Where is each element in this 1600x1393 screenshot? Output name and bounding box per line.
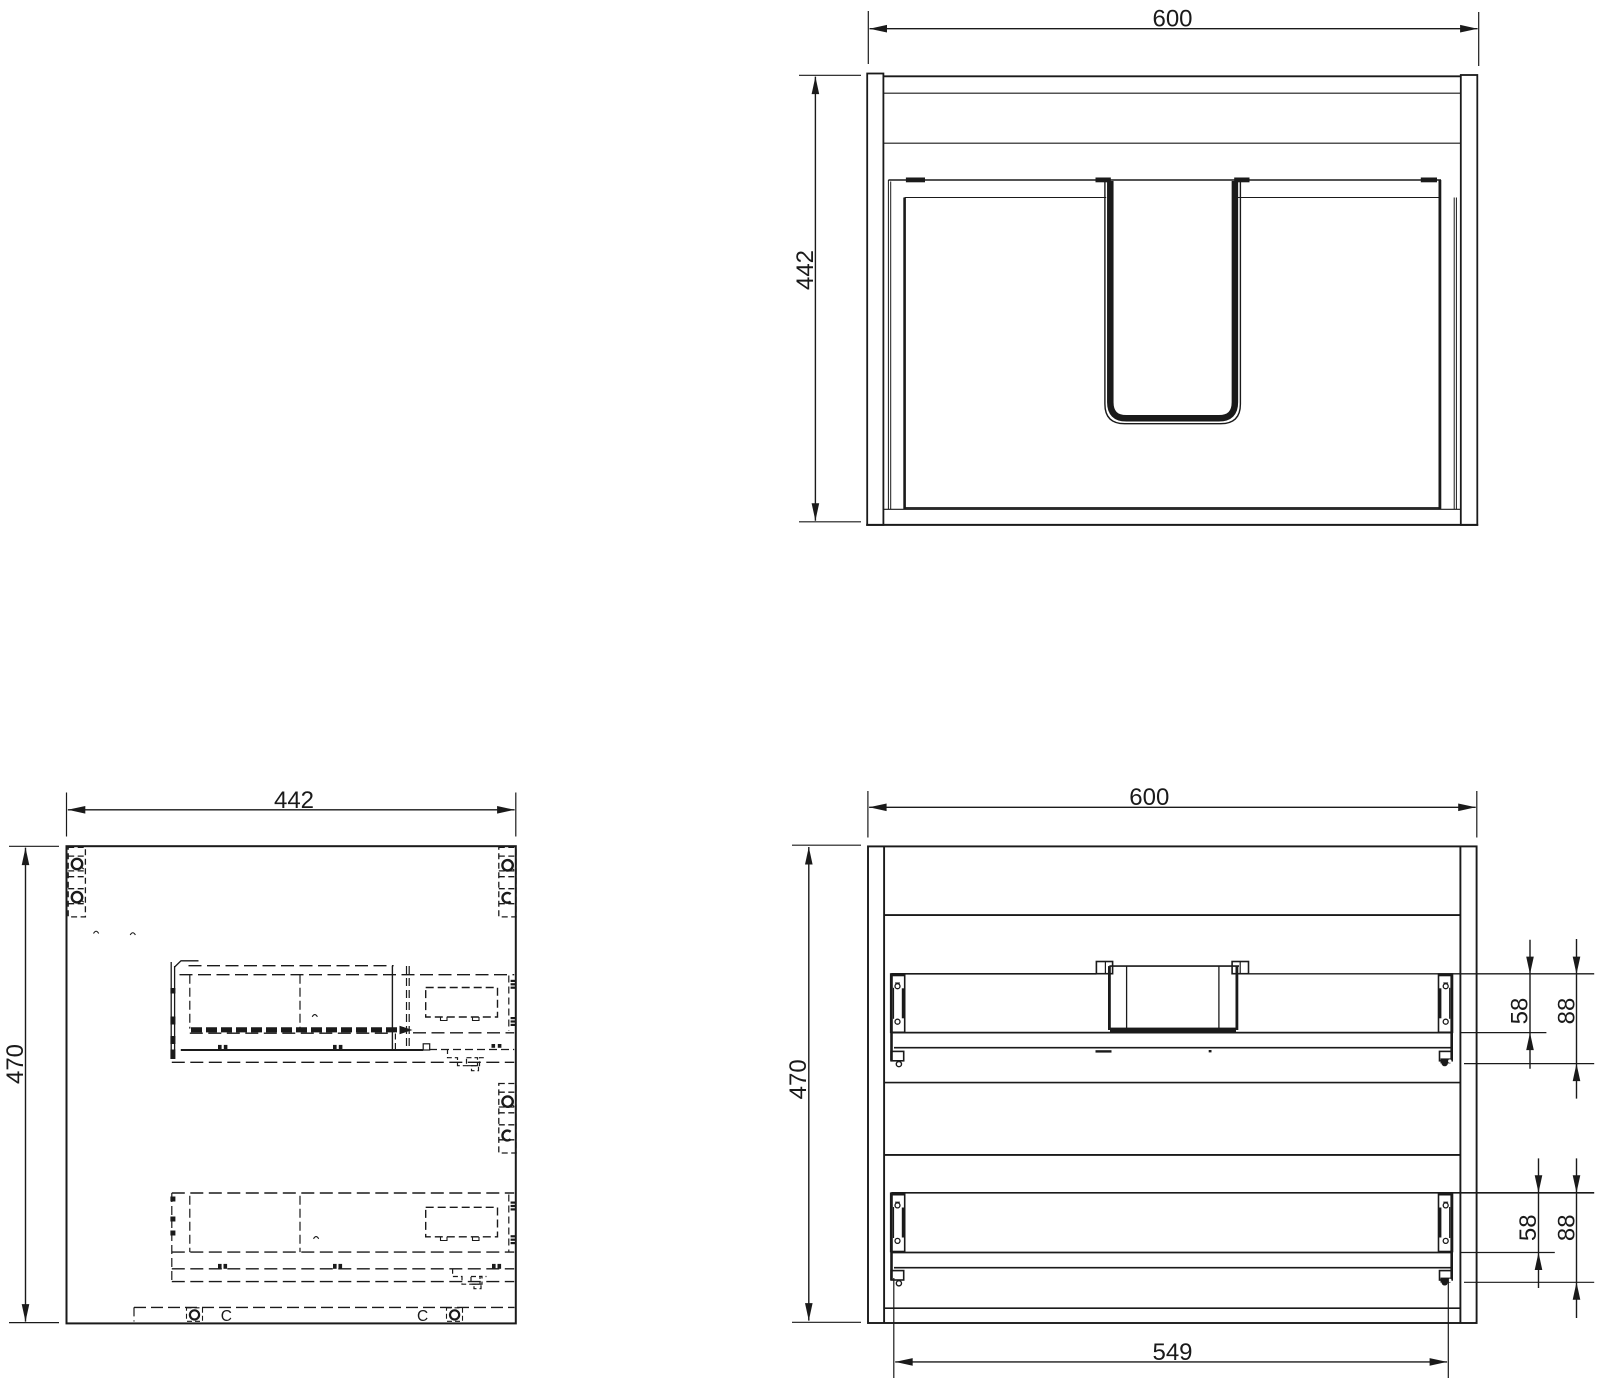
svg-text:88: 88 [1554, 998, 1581, 1025]
svg-text:58: 58 [1507, 998, 1534, 1025]
svg-text:600: 600 [1152, 6, 1192, 33]
svg-text:442: 442 [792, 250, 819, 290]
svg-text:C: C [221, 1308, 232, 1325]
svg-text:549: 549 [1152, 1339, 1192, 1366]
svg-text:470: 470 [2, 1044, 29, 1084]
svg-text:88: 88 [1554, 1214, 1581, 1241]
svg-text:58: 58 [1515, 1214, 1542, 1241]
svg-text:600: 600 [1129, 784, 1169, 811]
svg-text:470: 470 [785, 1059, 812, 1099]
svg-text:442: 442 [274, 787, 314, 814]
svg-text:C: C [417, 1308, 428, 1325]
